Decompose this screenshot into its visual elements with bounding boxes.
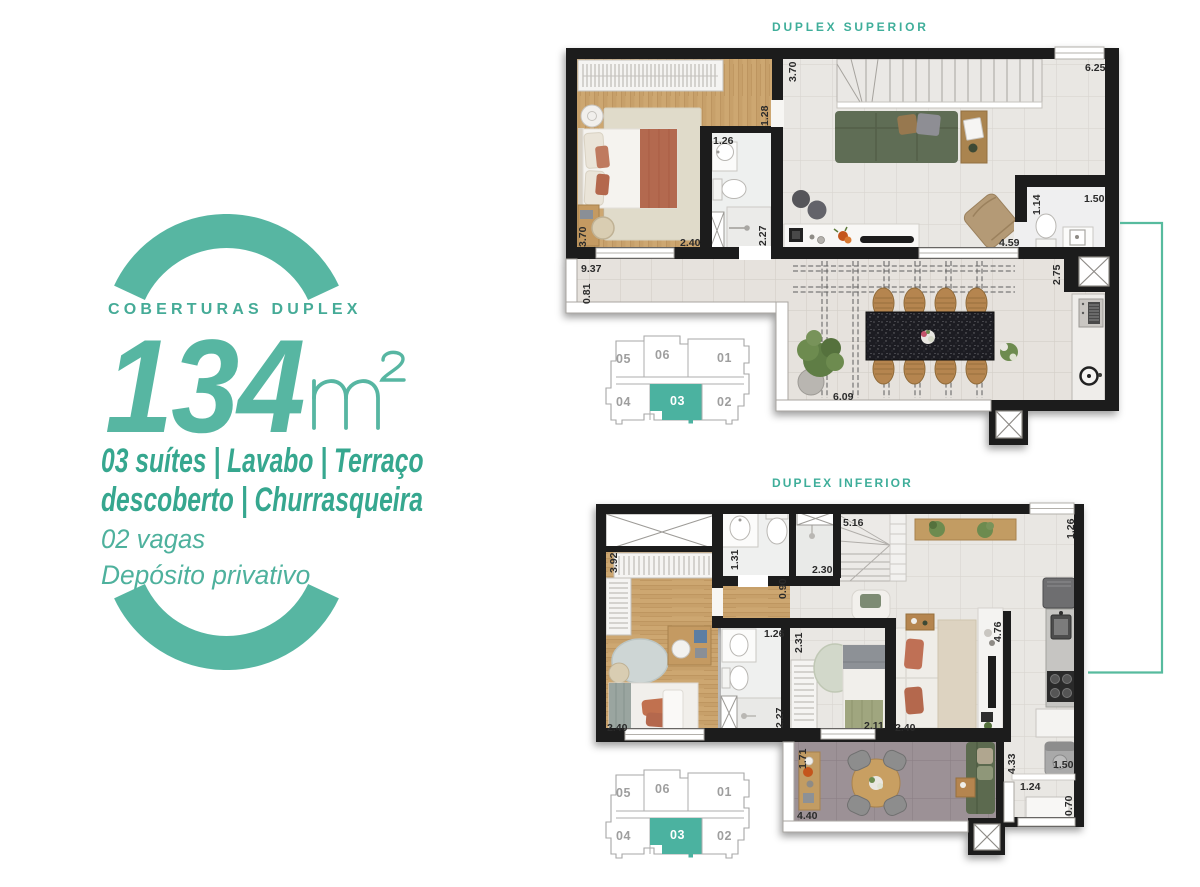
svg-text:1.50: 1.50 [1053,759,1074,771]
svg-text:1.26: 1.26 [1065,518,1077,539]
svg-text:04: 04 [616,829,631,843]
svg-text:2.40: 2.40 [895,722,916,734]
svg-text:02: 02 [717,395,732,409]
svg-text:2.31: 2.31 [793,632,805,653]
svg-text:6.09: 6.09 [833,391,854,403]
svg-text:1.14: 1.14 [1031,194,1043,215]
svg-text:2.40: 2.40 [680,237,701,249]
svg-text:2.30: 2.30 [812,564,833,576]
svg-text:0.81: 0.81 [581,283,593,304]
svg-text:1.24: 1.24 [1020,781,1041,793]
svg-text:6.25: 6.25 [1085,62,1106,74]
svg-text:03: 03 [670,394,685,408]
svg-text:1.31: 1.31 [729,549,741,570]
svg-text:1.26: 1.26 [713,135,734,147]
svg-text:4.76: 4.76 [992,621,1004,642]
svg-text:4.59: 4.59 [999,237,1020,249]
svg-text:4.40: 4.40 [797,810,818,822]
svg-text:1.28: 1.28 [759,105,771,126]
svg-text:1.71: 1.71 [797,748,809,769]
svg-text:2.40: 2.40 [607,722,628,734]
svg-text:5.16: 5.16 [843,517,864,529]
svg-text:4.33: 4.33 [1006,753,1018,774]
svg-text:2.27: 2.27 [757,225,769,246]
svg-text:2.27: 2.27 [774,707,786,728]
svg-text:9.37: 9.37 [581,263,602,275]
svg-text:04: 04 [616,395,631,409]
svg-text:02: 02 [717,829,732,843]
svg-text:0.70: 0.70 [1063,795,1075,816]
svg-text:3.70: 3.70 [787,61,799,82]
svg-text:3.70: 3.70 [577,226,589,247]
svg-text:01: 01 [717,785,732,799]
svg-text:06: 06 [655,348,670,362]
svg-text:05: 05 [616,352,631,366]
svg-text:1.50: 1.50 [1084,193,1105,205]
svg-text:06: 06 [655,782,670,796]
svg-text:2.75: 2.75 [1051,264,1063,285]
svg-text:03: 03 [670,828,685,842]
svg-text:2.11: 2.11 [864,720,884,732]
svg-text:1.26: 1.26 [764,628,785,640]
svg-text:05: 05 [616,786,631,800]
svg-text:0.90: 0.90 [777,578,789,599]
svg-text:3.92: 3.92 [608,552,620,573]
svg-text:01: 01 [717,351,732,365]
